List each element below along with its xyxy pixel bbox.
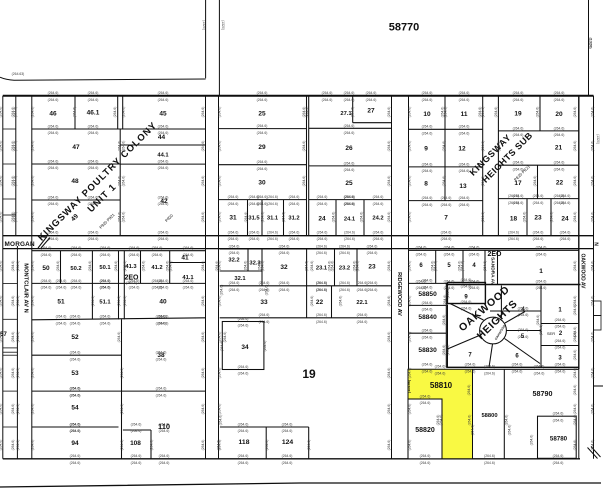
svg-text:(264.6): (264.6) <box>201 176 205 187</box>
svg-text:47: 47 <box>72 144 80 151</box>
svg-text:(264.6): (264.6) <box>131 422 142 426</box>
svg-text:(264.6): (264.6) <box>459 169 470 173</box>
svg-text:(264.6): (264.6) <box>305 107 309 118</box>
svg-text:18: 18 <box>510 216 518 223</box>
svg-text:(264.6): (264.6) <box>16 332 20 343</box>
svg-text:(264.6): (264.6) <box>282 461 293 465</box>
svg-text:(264.6): (264.6) <box>422 279 433 283</box>
svg-text:(264.6): (264.6) <box>31 368 35 379</box>
svg-text:(264.6): (264.6) <box>257 131 268 135</box>
svg-text:(264.6): (264.6) <box>339 296 343 307</box>
svg-text:20: 20 <box>555 111 563 118</box>
svg-text:(264.6): (264.6) <box>31 404 35 415</box>
svg-text:(264.6): (264.6) <box>387 296 391 307</box>
svg-text:(264.6): (264.6) <box>344 168 355 172</box>
svg-text:(264.6): (264.6) <box>56 279 67 283</box>
svg-text:(264.6): (264.6) <box>114 261 118 272</box>
svg-text:(264.6): (264.6) <box>48 124 59 128</box>
svg-text:MONTCLAIR AV N: MONTCLAIR AV N <box>22 263 28 313</box>
svg-text:(264.6): (264.6) <box>11 404 15 415</box>
svg-text:(264.6): (264.6) <box>484 365 495 369</box>
svg-text:(264.6): (264.6) <box>387 212 391 223</box>
svg-text:(264.6): (264.6) <box>554 167 565 171</box>
svg-text:32.2: 32.2 <box>228 258 239 264</box>
svg-text:(264.6): (264.6) <box>118 176 122 187</box>
svg-text:(264.6): (264.6) <box>117 296 121 307</box>
svg-text:(264.6): (264.6) <box>122 107 126 118</box>
svg-text:(264.6): (264.6) <box>512 363 523 367</box>
svg-text:(264.6): (264.6) <box>550 212 554 223</box>
svg-text:(264.6): (264.6) <box>407 212 411 223</box>
svg-text:(264.6): (264.6) <box>407 176 411 187</box>
svg-text:(264.6): (264.6) <box>332 212 336 223</box>
svg-text:(264.6): (264.6) <box>305 261 309 272</box>
svg-text:(264.6): (264.6) <box>533 230 544 234</box>
svg-text:58850: 58850 <box>418 291 437 298</box>
svg-text:(264.6): (264.6) <box>56 286 67 290</box>
svg-text:33: 33 <box>260 299 268 306</box>
svg-text:(264.6): (264.6) <box>331 261 335 272</box>
svg-text:(264.6): (264.6) <box>573 107 577 118</box>
svg-text:11: 11 <box>461 111 468 118</box>
svg-text:(264.6): (264.6) <box>529 435 533 446</box>
svg-text:(264.6): (264.6) <box>156 357 167 361</box>
svg-text:19: 19 <box>514 111 522 118</box>
svg-text:(264.6): (264.6) <box>31 176 35 187</box>
svg-text:(264.6): (264.6) <box>508 230 519 234</box>
svg-text:(264.6): (264.6) <box>422 335 433 339</box>
svg-text:(264.6): (264.6) <box>387 368 391 379</box>
svg-text:(264.6): (264.6) <box>0 368 2 379</box>
svg-text:(264.6): (264.6) <box>117 332 121 343</box>
svg-text:(264.6): (264.6) <box>70 315 81 319</box>
svg-text:22: 22 <box>316 299 324 306</box>
svg-text:108: 108 <box>130 440 141 447</box>
svg-text:(264.6): (264.6) <box>131 454 142 458</box>
svg-text:24: 24 <box>318 216 326 223</box>
svg-text:(264.6): (264.6) <box>158 159 169 163</box>
svg-text:(264.6): (264.6) <box>317 195 328 199</box>
svg-text:31.1: 31.1 <box>267 216 279 222</box>
svg-text:(264.6): (264.6) <box>573 305 577 316</box>
svg-text:(264.6): (264.6) <box>422 196 433 200</box>
svg-text:(264.6): (264.6) <box>11 368 15 379</box>
svg-text:(264.6): (264.6) <box>344 91 355 95</box>
svg-text:58830: 58830 <box>418 347 437 354</box>
svg-text:(264.6): (264.6) <box>120 440 124 451</box>
svg-text:(264.6): (264.6) <box>123 296 127 307</box>
svg-text:(264.6): (264.6) <box>591 212 595 223</box>
svg-text:(264.6): (264.6) <box>16 296 20 307</box>
svg-text:(264.6): (264.6) <box>420 454 431 458</box>
svg-text:58820: 58820 <box>415 427 435 434</box>
svg-text:(264.6): (264.6) <box>416 246 427 250</box>
svg-text:(264.6): (264.6) <box>536 107 540 118</box>
svg-text:(264.6): (264.6) <box>88 237 99 241</box>
svg-text:(264.6): (264.6) <box>0 296 2 307</box>
svg-text:(264.6): (264.6) <box>302 141 306 152</box>
svg-text:(264.6): (264.6) <box>591 107 595 118</box>
svg-text:(264.6): (264.6) <box>265 440 269 451</box>
svg-text:(264.6): (264.6) <box>228 202 239 206</box>
svg-text:(264.6): (264.6) <box>16 261 20 272</box>
svg-text:(264.6): (264.6) <box>407 261 411 272</box>
svg-text:(264.6): (264.6) <box>442 141 446 152</box>
svg-text:(264.6): (264.6) <box>420 461 431 465</box>
svg-text:(264.6): (264.6) <box>407 296 411 307</box>
svg-text:(264.6): (264.6) <box>573 261 577 272</box>
svg-text:(264.6): (264.6) <box>459 125 470 129</box>
svg-text:(264.6): (264.6) <box>158 286 169 290</box>
svg-text:52: 52 <box>71 334 79 341</box>
svg-text:(264.6): (264.6) <box>446 288 450 299</box>
svg-text:(264.6): (264.6) <box>536 315 540 326</box>
svg-text:(264.6): (264.6) <box>513 126 524 130</box>
svg-text:(264.6): (264.6) <box>129 246 140 250</box>
svg-text:(264.6): (264.6) <box>554 126 565 130</box>
svg-text:(264.6): (264.6) <box>461 278 472 282</box>
svg-text:(264.6): (264.6) <box>357 320 368 324</box>
svg-text:(264.6): (264.6) <box>422 370 433 374</box>
svg-text:(264.6): (264.6) <box>217 212 221 223</box>
svg-text:(264.6): (264.6) <box>387 332 391 343</box>
svg-text:(264.6): (264.6) <box>259 281 270 285</box>
svg-text:(264.6): (264.6) <box>387 141 391 152</box>
svg-text:(264.6): (264.6) <box>249 195 260 199</box>
svg-text:(264.6): (264.6) <box>344 131 355 135</box>
svg-text:(264.6): (264.6) <box>156 393 167 397</box>
svg-text:23: 23 <box>368 264 376 271</box>
svg-text:10: 10 <box>423 111 431 118</box>
svg-text:(264.6): (264.6) <box>573 141 577 152</box>
svg-text:(264.6): (264.6) <box>366 91 377 95</box>
svg-text:(264.6): (264.6) <box>201 368 205 379</box>
svg-text:(264.63): (264.63) <box>12 72 25 76</box>
svg-text:(264.6): (264.6) <box>533 176 537 187</box>
svg-text:(264.6): (264.6) <box>407 440 411 451</box>
svg-text:(264.6): (264.6) <box>11 296 15 307</box>
svg-text:(264.6): (264.6) <box>88 166 99 170</box>
svg-text:(264.6): (264.6) <box>573 368 577 379</box>
svg-text:(264.6): (264.6) <box>317 202 328 206</box>
svg-text:(264.6): (264.6) <box>591 368 595 379</box>
svg-text:(264.6): (264.6) <box>573 212 577 223</box>
svg-text:(264.6): (264.6) <box>553 461 564 465</box>
svg-text:(264.6): (264.6) <box>70 393 81 397</box>
svg-text:94: 94 <box>71 440 79 447</box>
svg-text:(264.6): (264.6) <box>316 281 327 285</box>
svg-text:(264.6): (264.6) <box>100 286 111 290</box>
svg-text:(264.6): (264.6) <box>533 201 544 205</box>
svg-text:(264.6): (264.6) <box>100 246 111 250</box>
svg-text:SANDRA AV: SANDRA AV <box>489 257 495 286</box>
svg-text:(264.6): (264.6) <box>201 212 205 223</box>
svg-text:(264.6): (264.6) <box>56 322 67 326</box>
svg-text:50.2: 50.2 <box>70 266 81 272</box>
svg-text:(264.6): (264.6) <box>373 195 384 199</box>
svg-text:(264.6): (264.6) <box>344 202 355 206</box>
svg-text:(264.6): (264.6) <box>422 169 433 173</box>
svg-text:(264.6): (264.6) <box>513 91 524 95</box>
svg-text:(264.6): (264.6) <box>483 261 487 272</box>
svg-text:(264.6): (264.6) <box>302 176 306 187</box>
svg-text:(264.6): (264.6) <box>48 230 59 234</box>
svg-text:(264.6): (264.6) <box>0 261 2 272</box>
svg-text:(264.6): (264.6) <box>158 195 169 199</box>
svg-text:53: 53 <box>71 370 79 377</box>
svg-text:(264.6): (264.6) <box>555 370 566 374</box>
svg-text:(264.6): (264.6) <box>523 212 527 223</box>
svg-text:(264.6): (264.6) <box>217 296 221 307</box>
svg-text:(264.6): (264.6) <box>257 160 268 164</box>
svg-text:34: 34 <box>241 344 249 351</box>
svg-text:(264.6): (264.6) <box>555 346 566 350</box>
svg-text:(264.6): (264.6) <box>317 230 328 234</box>
svg-text:(264.6): (264.6) <box>201 107 205 118</box>
svg-text:(264.6): (264.6) <box>201 404 205 415</box>
svg-text:31.2: 31.2 <box>288 216 299 222</box>
svg-text:(264.6): (264.6) <box>279 244 290 248</box>
svg-text:(264.6): (264.6) <box>265 285 269 296</box>
svg-text:(264.6): (264.6) <box>118 212 122 223</box>
svg-text:(264.6): (264.6) <box>536 286 547 290</box>
svg-text:(1320): (1320) <box>221 20 225 30</box>
svg-text:(264.6): (264.6) <box>344 161 355 165</box>
svg-text:(264.6): (264.6) <box>439 415 443 426</box>
svg-text:(264.6): (264.6) <box>267 202 278 206</box>
svg-text:(264.6): (264.6) <box>238 461 249 465</box>
svg-text:46.1: 46.1 <box>87 110 100 117</box>
svg-text:(264.6): (264.6) <box>201 141 205 152</box>
svg-text:(264.6): (264.6) <box>387 404 391 415</box>
svg-text:(264.6): (264.6) <box>88 131 99 135</box>
svg-text:(264.6): (264.6) <box>156 322 167 326</box>
svg-text:(264.6): (264.6) <box>441 237 452 241</box>
svg-text:(264.6): (264.6) <box>539 325 543 336</box>
svg-text:(264.6): (264.6) <box>407 141 411 152</box>
svg-text:(264.6): (264.6) <box>422 203 433 207</box>
svg-text:(264.6): (264.6) <box>441 230 452 234</box>
svg-text:(264.6): (264.6) <box>536 279 547 283</box>
svg-text:(264.6): (264.6) <box>387 440 391 451</box>
svg-text:8: 8 <box>424 181 428 188</box>
svg-text:(264.6): (264.6) <box>434 261 438 272</box>
svg-text:(264.6): (264.6) <box>470 425 474 436</box>
svg-text:(264.6): (264.6) <box>0 176 2 187</box>
svg-text:(264.6): (264.6) <box>461 285 472 289</box>
svg-text:58810: 58810 <box>430 381 453 390</box>
svg-text:(264.6): (264.6) <box>560 201 571 205</box>
svg-text:(264.6): (264.6) <box>459 98 470 102</box>
svg-text:(264.6): (264.6) <box>573 404 577 415</box>
svg-text:(264.6): (264.6) <box>555 339 566 343</box>
svg-text:(264.6): (264.6) <box>31 440 35 451</box>
svg-text:(264.6): (264.6) <box>201 261 205 272</box>
svg-text:(264.6): (264.6) <box>238 454 249 458</box>
svg-text:(264.6): (264.6) <box>310 261 314 272</box>
svg-text:(264.6): (264.6) <box>88 159 99 163</box>
svg-text:(264.6): (264.6) <box>228 195 239 199</box>
svg-text:(264.6): (264.6) <box>555 318 566 322</box>
svg-text:(264.6): (264.6) <box>244 212 248 223</box>
svg-text:(264.6): (264.6) <box>339 251 350 255</box>
svg-text:22.1: 22.1 <box>356 300 368 306</box>
svg-text:(264.6): (264.6) <box>158 202 169 206</box>
svg-text:(264.6): (264.6) <box>373 237 384 241</box>
svg-text:(264.6): (264.6) <box>16 404 20 415</box>
svg-text:(264.6): (264.6) <box>441 196 452 200</box>
svg-text:(264.6): (264.6) <box>229 251 240 255</box>
svg-text:(264.6): (264.6) <box>228 230 239 234</box>
svg-text:(264.6): (264.6) <box>122 141 126 152</box>
svg-text:(264.6): (264.6) <box>0 332 2 343</box>
svg-text:(264.6): (264.6) <box>442 315 446 326</box>
svg-text:(264.6): (264.6) <box>484 461 495 465</box>
svg-text:(264.6): (264.6) <box>444 107 448 118</box>
svg-text:(264.6): (264.6) <box>560 194 571 198</box>
svg-text:(264.6): (264.6) <box>357 313 368 317</box>
svg-text:21: 21 <box>555 145 563 152</box>
svg-text:(114.96): (114.96) <box>407 379 411 393</box>
svg-text:(264.6): (264.6) <box>131 429 142 433</box>
svg-text:(264.6): (264.6) <box>257 91 268 95</box>
svg-text:(264.6): (264.6) <box>591 440 595 451</box>
svg-text:(264.6): (264.6) <box>373 230 384 234</box>
svg-text:(264.6): (264.6) <box>228 237 239 241</box>
svg-text:(264.6): (264.6) <box>257 98 268 102</box>
svg-text:(264.6): (264.6) <box>131 461 142 465</box>
svg-text:(264.6): (264.6) <box>91 296 95 307</box>
svg-text:(264.6): (264.6) <box>422 363 433 367</box>
svg-text:13: 13 <box>459 183 467 190</box>
svg-text:(264.6): (264.6) <box>201 296 205 307</box>
svg-text:29: 29 <box>258 144 266 151</box>
svg-text:(264.6): (264.6) <box>129 279 140 283</box>
svg-text:(264.6): (264.6) <box>316 313 327 317</box>
svg-text:(264.6): (264.6) <box>122 212 126 223</box>
svg-text:(264.6): (264.6) <box>158 166 169 170</box>
svg-text:(264.6): (264.6) <box>367 244 378 248</box>
svg-text:(264.6): (264.6) <box>573 350 577 361</box>
svg-text:41.3: 41.3 <box>125 264 137 270</box>
svg-text:(264.6): (264.6) <box>11 261 15 272</box>
svg-text:(264.6): (264.6) <box>100 322 111 326</box>
svg-text:(264.6): (264.6) <box>31 212 35 223</box>
svg-text:(264.6): (264.6) <box>435 365 446 369</box>
svg-text:(264.6): (264.6) <box>518 335 529 339</box>
svg-text:(264.6): (264.6) <box>289 237 300 241</box>
svg-text:(1320): (1320) <box>596 134 600 144</box>
svg-text:(264.6): (264.6) <box>553 412 564 416</box>
svg-text:(264.6): (264.6) <box>494 107 498 118</box>
svg-text:25: 25 <box>258 111 266 118</box>
svg-text:24.2: 24.2 <box>372 216 383 222</box>
svg-text:(264.6): (264.6) <box>152 246 163 250</box>
svg-text:(264.6): (264.6) <box>0 141 2 152</box>
svg-text:(264.6): (264.6) <box>48 91 59 95</box>
svg-text:(264.6): (264.6) <box>159 429 170 433</box>
svg-text:(264.6): (264.6) <box>71 253 82 257</box>
svg-text:(264.6): (264.6) <box>70 429 81 433</box>
svg-text:(264.6): (264.6) <box>469 246 480 250</box>
svg-text:(264.6): (264.6) <box>282 422 293 426</box>
svg-text:(264.6): (264.6) <box>279 251 290 255</box>
svg-text:(264.6): (264.6) <box>553 454 564 458</box>
svg-text:32: 32 <box>280 264 288 271</box>
svg-text:(264.6): (264.6) <box>261 212 265 223</box>
svg-text:(264.6): (264.6) <box>31 296 35 307</box>
svg-text:(264.6): (264.6) <box>70 322 81 326</box>
svg-text:(264.6): (264.6) <box>71 286 82 290</box>
svg-text:22: 22 <box>556 180 564 187</box>
svg-text:(264.6): (264.6) <box>159 422 170 426</box>
svg-text:(264.6): (264.6) <box>554 133 565 137</box>
svg-text:(264.6): (264.6) <box>481 107 485 118</box>
svg-text:(264.6): (264.6) <box>183 279 194 283</box>
svg-text:(1320): (1320) <box>202 20 206 30</box>
svg-text:(264.6): (264.6) <box>573 385 577 396</box>
svg-text:124: 124 <box>282 439 294 446</box>
svg-text:(264.6): (264.6) <box>70 351 81 355</box>
svg-text:58790: 58790 <box>533 389 553 398</box>
svg-text:(264.6): (264.6) <box>48 98 59 102</box>
svg-text:(264.6): (264.6) <box>573 176 577 187</box>
svg-text:(264.6): (264.6) <box>267 195 278 199</box>
svg-text:(264.6): (264.6) <box>70 461 81 465</box>
svg-text:(264.6): (264.6) <box>244 261 248 272</box>
svg-text:(264.6): (264.6) <box>16 368 20 379</box>
svg-text:23: 23 <box>534 215 542 222</box>
svg-text:(264.6): (264.6) <box>41 286 52 290</box>
svg-text:(264.6): (264.6) <box>422 162 433 166</box>
svg-text:(264.6): (264.6) <box>573 415 577 426</box>
svg-text:(264.6): (264.6) <box>469 253 480 257</box>
svg-text:(264.6): (264.6) <box>88 261 92 272</box>
svg-text:(264.6): (264.6) <box>442 176 446 187</box>
svg-text:(264.6): (264.6) <box>316 244 327 248</box>
svg-text:(264.6): (264.6) <box>156 351 167 355</box>
svg-text:(264.6): (264.6) <box>257 124 268 128</box>
svg-text:(264.6): (264.6) <box>31 261 35 272</box>
svg-text:58770: 58770 <box>389 22 420 34</box>
svg-text:(264.6): (264.6) <box>31 332 35 343</box>
svg-text:(264.6): (264.6) <box>229 244 240 248</box>
svg-text:25: 25 <box>345 180 353 187</box>
svg-text:(264.6): (264.6) <box>536 253 547 257</box>
svg-text:(264.6): (264.6) <box>249 230 260 234</box>
svg-text:(264.6): (264.6) <box>360 212 364 223</box>
svg-text:(264.6): (264.6) <box>467 385 471 396</box>
svg-text:58800: 58800 <box>481 413 497 419</box>
svg-text:(264.6): (264.6) <box>14 141 18 152</box>
svg-text:58780: 58780 <box>550 436 568 443</box>
svg-text:(264.6): (264.6) <box>518 328 529 332</box>
svg-text:(264.6): (264.6) <box>407 332 411 343</box>
svg-text:SER: SER <box>547 331 555 336</box>
svg-text:(264.6): (264.6) <box>446 345 450 356</box>
svg-text:(264.6): (264.6) <box>554 161 565 165</box>
svg-text:(264.6): (264.6) <box>158 131 169 135</box>
svg-text:(264.6): (264.6) <box>217 404 221 415</box>
svg-text:(264.6): (264.6) <box>100 253 111 257</box>
svg-text:(264.6): (264.6) <box>217 141 221 152</box>
svg-text:23.1: 23.1 <box>316 266 328 272</box>
svg-text:(264.6): (264.6) <box>407 404 411 415</box>
svg-text:(264.6): (264.6) <box>513 98 524 102</box>
svg-text:(264.6): (264.6) <box>156 315 167 319</box>
svg-text:(264.6): (264.6) <box>183 246 194 250</box>
svg-text:(264.6): (264.6) <box>217 368 221 379</box>
